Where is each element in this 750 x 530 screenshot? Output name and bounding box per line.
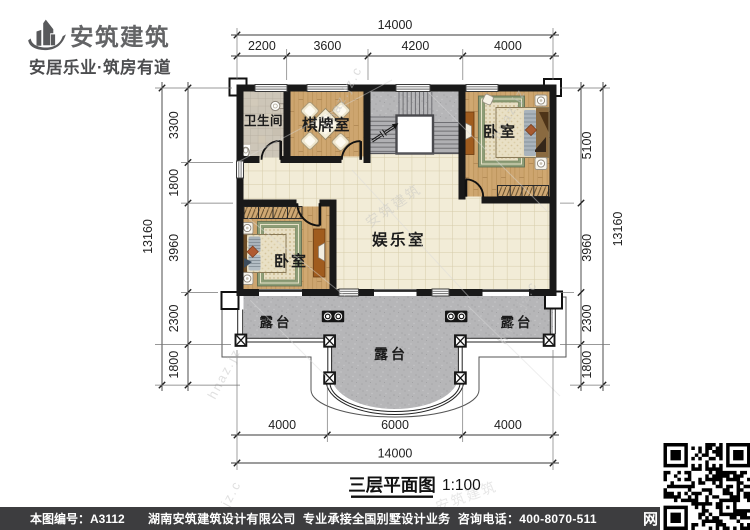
svg-text:露台: 露台 xyxy=(374,346,408,362)
svg-text:4200: 4200 xyxy=(401,39,429,53)
svg-text:1800: 1800 xyxy=(167,351,181,379)
svg-text:网: 网 xyxy=(643,511,658,528)
svg-text:1800: 1800 xyxy=(580,351,594,379)
svg-text:卧室: 卧室 xyxy=(274,252,308,270)
svg-text:1800: 1800 xyxy=(167,169,181,197)
svg-text:卫生间: 卫生间 xyxy=(244,113,283,128)
svg-text:13160: 13160 xyxy=(141,219,155,254)
svg-text:3960: 3960 xyxy=(580,234,594,262)
svg-text:3960: 3960 xyxy=(167,234,181,262)
svg-text:露台: 露台 xyxy=(260,314,293,330)
svg-text:三层平面图: 三层平面图 xyxy=(348,475,436,495)
svg-text:2300: 2300 xyxy=(580,304,594,332)
svg-text:6000: 6000 xyxy=(381,418,409,432)
svg-text:湖南安筑建筑设计有限公司 专业承接全国别墅设计业务 咨询: 湖南安筑建筑设计有限公司 专业承接全国别墅设计业务 咨询电话：400-8070-… xyxy=(148,511,597,526)
svg-text:4000: 4000 xyxy=(268,418,296,432)
svg-text:3300: 3300 xyxy=(167,111,181,139)
svg-text:13160: 13160 xyxy=(611,212,625,247)
svg-text:14000: 14000 xyxy=(378,18,413,32)
svg-text:5100: 5100 xyxy=(580,132,594,160)
svg-text:14000: 14000 xyxy=(378,447,413,461)
svg-text:4000: 4000 xyxy=(494,418,522,432)
svg-text:本图编号：A3112: 本图编号：A3112 xyxy=(30,511,125,526)
svg-text:1:100: 1:100 xyxy=(442,477,481,494)
svg-text:4000: 4000 xyxy=(494,39,522,53)
svg-text:安筑建筑: 安筑建筑 xyxy=(70,23,170,50)
svg-text:3600: 3600 xyxy=(313,39,341,53)
svg-text:2300: 2300 xyxy=(167,304,181,332)
svg-text:安居乐业·筑房有道: 安居乐业·筑房有道 xyxy=(29,57,171,77)
svg-text:娱乐室: 娱乐室 xyxy=(372,230,426,249)
svg-text:2200: 2200 xyxy=(248,39,276,53)
